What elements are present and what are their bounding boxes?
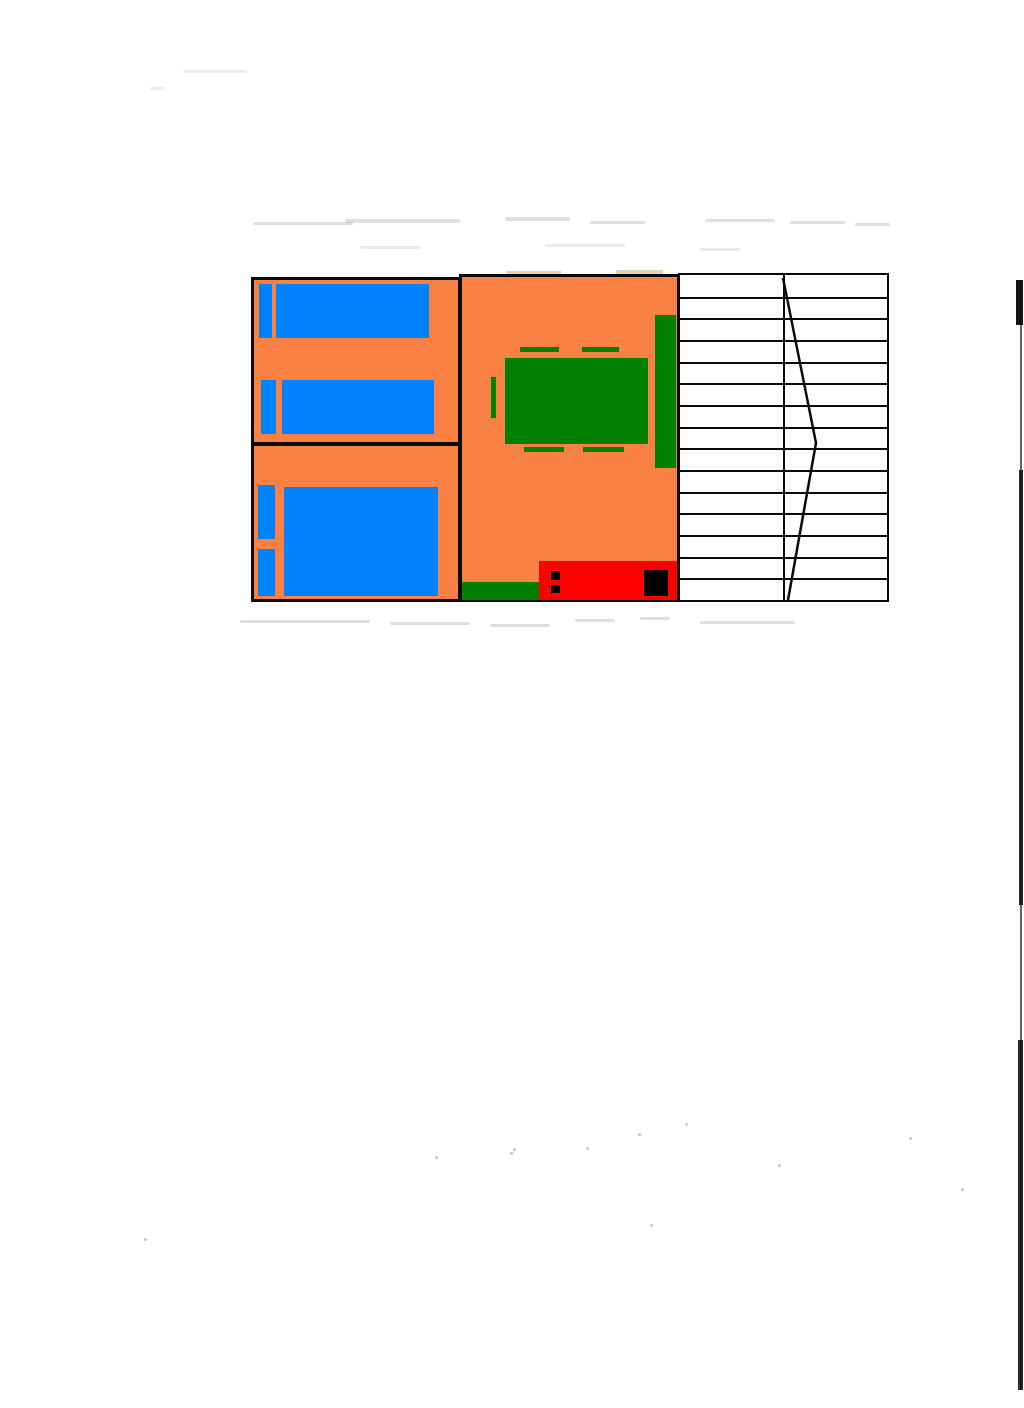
- scan-smudge: [150, 87, 164, 90]
- scan-smudge: [590, 221, 645, 224]
- dining-table: [505, 358, 648, 444]
- scan-smudge: [700, 248, 740, 251]
- scan-smudge: [345, 219, 460, 223]
- chair-mark-top-1: [520, 347, 559, 352]
- double-bed-pillow-1: [258, 485, 275, 539]
- bed-2: [282, 380, 434, 434]
- scan-smudge: [545, 244, 625, 247]
- scan-smudge: [240, 620, 370, 623]
- door-mat: [462, 582, 539, 600]
- bed-2-pillow: [261, 380, 276, 434]
- chair-mark-bottom-1: [524, 447, 564, 452]
- scan-smudge: [505, 217, 570, 221]
- scan-speck: [909, 1137, 912, 1140]
- bed-1: [276, 284, 429, 338]
- scan-smudge: [490, 624, 550, 627]
- scan-smudge: [700, 621, 795, 624]
- deck-stairs-area: [678, 273, 889, 602]
- scan-speck: [961, 1188, 964, 1191]
- scan-speck: [685, 1123, 688, 1126]
- sofa-bench: [655, 315, 676, 468]
- chair-mark-top-2: [582, 347, 619, 352]
- scan-edge-blob: [1016, 280, 1023, 325]
- scan-edge-blob: [1018, 1040, 1023, 1390]
- scan-speck: [778, 1164, 781, 1167]
- double-bed-pillow-2: [258, 549, 275, 596]
- scan-speck: [586, 1147, 589, 1150]
- counter-knob-1: [551, 571, 560, 580]
- scan-smudge: [790, 221, 845, 224]
- scan-smudge: [705, 219, 775, 222]
- scan-smudge: [390, 622, 470, 625]
- scan-smudge: [253, 222, 353, 225]
- chair-mark-left: [491, 377, 496, 418]
- double-bed: [284, 487, 438, 596]
- scan-smudge: [640, 617, 670, 620]
- stove-sink-unit: [644, 570, 668, 596]
- scan-edge-blob: [1019, 470, 1023, 905]
- scan-speck: [513, 1148, 516, 1151]
- scan-speck: [638, 1133, 641, 1136]
- stairs-direction-chevron: [680, 275, 887, 600]
- scan-smudge: [575, 619, 615, 622]
- scan-speck: [435, 1156, 438, 1159]
- scan-speck: [650, 1224, 653, 1227]
- scan-speck: [144, 1238, 147, 1241]
- scanned-page: [0, 0, 1024, 1408]
- scan-speck: [510, 1152, 513, 1155]
- chair-mark-bottom-2: [583, 447, 624, 452]
- counter-knob-2: [551, 585, 560, 593]
- bed-1-pillow: [259, 284, 272, 338]
- scan-smudge: [360, 246, 420, 249]
- scan-smudge: [183, 70, 247, 73]
- scan-smudge: [855, 223, 890, 226]
